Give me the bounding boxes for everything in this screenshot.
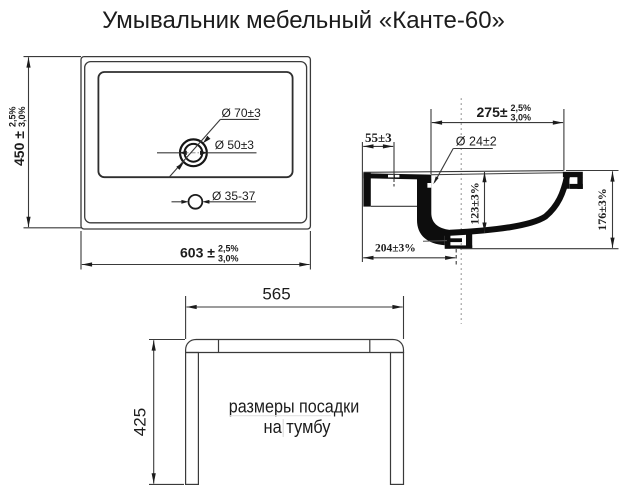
svg-text:на тумбу: на тумбу — [264, 417, 331, 437]
svg-text:204±3%: 204±3% — [375, 243, 416, 255]
svg-text:Ø 50±3: Ø 50±3 — [215, 138, 255, 152]
svg-text:425: 425 — [131, 408, 150, 436]
svg-text:275±: 275± — [477, 104, 508, 120]
svg-text:Умывальник мебельный «Канте-60: Умывальник мебельный «Канте-60» — [102, 7, 505, 34]
svg-text:3,0%: 3,0% — [218, 254, 239, 264]
svg-text:2,5%: 2,5% — [218, 244, 239, 254]
svg-text:Ø 35-37: Ø 35-37 — [212, 189, 256, 203]
svg-text:2,5%: 2,5% — [8, 106, 18, 127]
svg-text:3,0%: 3,0% — [17, 106, 27, 127]
svg-text:603 ±: 603 ± — [180, 245, 215, 261]
svg-text:450 ±: 450 ± — [11, 131, 27, 166]
svg-text:123±3%: 123±3% — [468, 182, 482, 225]
svg-text:565: 565 — [262, 285, 290, 304]
svg-text:2,5%: 2,5% — [511, 103, 532, 113]
svg-text:Ø 24±2: Ø 24±2 — [456, 135, 497, 149]
svg-text:176±3%: 176±3% — [595, 188, 609, 231]
svg-text:размеры посадки: размеры посадки — [229, 397, 360, 417]
svg-text:55±3: 55±3 — [365, 130, 392, 145]
svg-text:3,0%: 3,0% — [511, 113, 532, 123]
svg-text:Ø 70±3: Ø 70±3 — [222, 106, 262, 120]
